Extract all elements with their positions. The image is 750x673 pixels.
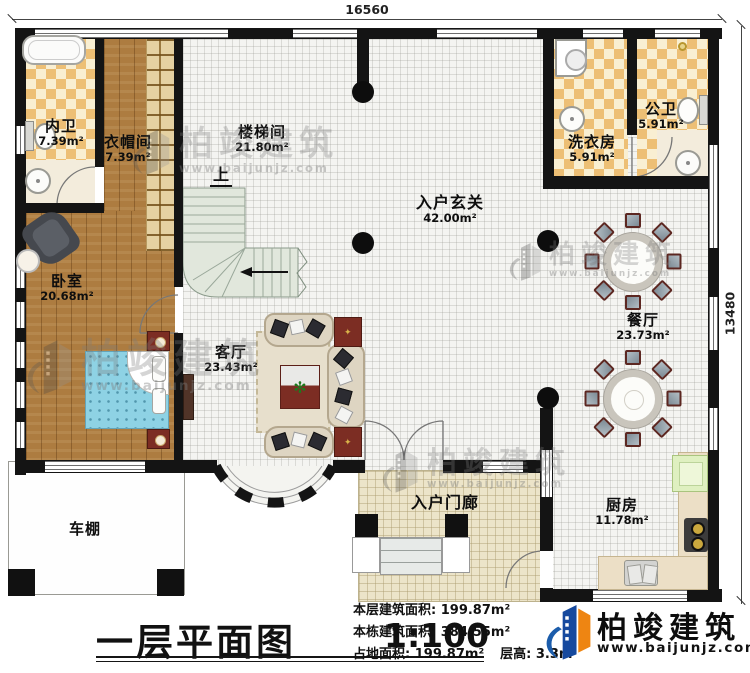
window-left-5 — [16, 382, 25, 408]
room-name: 楼梯间 — [235, 124, 288, 141]
washing-machine — [555, 39, 587, 77]
room-area: 42.00m² — [416, 212, 484, 225]
stair-up-label: 上 — [210, 161, 232, 187]
room-name: 卧室 — [40, 273, 93, 290]
porch-sill-left — [352, 537, 380, 573]
window-porch-top — [483, 461, 523, 472]
porch-steps — [380, 537, 442, 575]
toilet-tank-2 — [699, 95, 708, 125]
wall-bathroom1-right — [95, 35, 104, 167]
wall-laundry-bottom — [543, 176, 708, 189]
room-label-yimaojian: 衣帽间 7.39m² — [104, 134, 152, 164]
wall-laundry-bath-divider — [627, 35, 637, 135]
window-top-2 — [293, 29, 357, 38]
sofa-bottom — [264, 426, 334, 458]
room-name: 餐厅 — [616, 312, 669, 329]
window-right-1 — [709, 145, 718, 248]
dining-table-2 — [604, 370, 662, 428]
window-top-5 — [655, 29, 700, 38]
sink-laundry — [559, 106, 585, 132]
room-name: 衣帽间 — [104, 134, 152, 151]
window-left-6 — [16, 422, 25, 448]
room-name: 洗衣房 — [568, 134, 616, 151]
room-name: 入户门廊 — [411, 494, 479, 512]
toilet-tank-1 — [25, 121, 34, 151]
side-table-2: ✦ — [334, 427, 362, 457]
room-area: 5.91m² — [568, 151, 616, 164]
room-label-ruhuxuanguan: 入户玄关 42.00m² — [416, 194, 484, 225]
wall-stair-stub — [357, 35, 369, 87]
room-name: 内卫 — [38, 118, 83, 135]
room-area: 7.39m² — [104, 151, 152, 164]
pillow-2 — [152, 388, 166, 414]
fridge — [672, 455, 708, 492]
window-left-4 — [16, 342, 25, 368]
wall-bedroom-right — [174, 333, 183, 460]
stat-line-3: 占地面积: 199.87m²层高: 3.3m — [353, 644, 572, 666]
window-kitchen-bottom — [593, 590, 687, 601]
wall-laundry-left — [543, 35, 554, 180]
window-bedroom-bottom — [45, 461, 145, 472]
room-label-keting: 客厅 23.43m² — [204, 344, 257, 374]
pillow-1 — [152, 356, 166, 382]
tv-cabinet — [183, 374, 194, 420]
brand-url: www.baijunjz.com — [597, 640, 750, 656]
room-area: 5.91m² — [638, 118, 683, 131]
outside-area — [183, 466, 358, 600]
table-star-icon: ✦ — [344, 328, 352, 338]
window-left-1 — [16, 126, 25, 154]
stat-line-1: 本层建筑面积: 199.87m² — [353, 600, 572, 622]
room-name: 车棚 — [69, 521, 101, 538]
column-2 — [352, 232, 374, 254]
dining-table-1 — [604, 233, 662, 291]
faucet-bathroom2 — [678, 42, 687, 51]
shed-pillar-right — [157, 569, 184, 596]
window-right-3 — [709, 408, 718, 450]
room-label-neiwei: 内卫 7.39m² — [38, 118, 83, 148]
wall-bay-right — [333, 460, 365, 473]
building-stats: 本层建筑面积: 199.87m² 本栋建筑面积: 384.55m² 占地面积: … — [353, 600, 572, 666]
sink-bathroom1 — [25, 168, 51, 194]
room-label-canting: 餐厅 23.73m² — [616, 312, 669, 342]
room-label-gongwei: 公卫 5.91m² — [638, 101, 683, 131]
stat-line-2: 本栋建筑面积: 384.55m² — [353, 622, 572, 644]
window-left-3 — [16, 302, 25, 328]
dimension-right-label: 13480 — [723, 289, 738, 339]
window-right-2 — [709, 297, 718, 350]
bedroom-side-table — [16, 249, 40, 273]
table-star-icon: ✦ — [344, 438, 352, 448]
wall-closet-right — [174, 35, 183, 287]
sofa-top — [264, 313, 334, 347]
bathtub — [22, 35, 86, 65]
window-top-3 — [437, 29, 537, 38]
column-1 — [352, 81, 374, 103]
stove — [684, 518, 708, 552]
room-label-xiyifang: 洗衣房 5.91m² — [568, 134, 616, 164]
side-table-1: ✦ — [334, 317, 362, 347]
porch-sill-right — [442, 537, 470, 573]
room-label-ruhumenlang: 入户门廊 — [411, 494, 479, 512]
dimension-line-right — [741, 26, 742, 604]
dimension-line-top — [12, 19, 722, 20]
porch-pillar-left — [355, 514, 378, 537]
porch-pillar-right — [445, 514, 468, 537]
room-area: 7.39m² — [38, 135, 83, 148]
room-area: 21.80m² — [235, 141, 288, 154]
plant-icon: ✻ — [281, 378, 319, 397]
door-gap-porch-kitchen — [540, 551, 553, 588]
sink-bathroom2 — [675, 150, 701, 176]
room-area: 20.68m² — [40, 290, 93, 303]
column-3 — [537, 230, 559, 252]
room-area: 11.78m² — [595, 514, 648, 527]
room-label-chufang: 厨房 11.78m² — [595, 497, 648, 527]
room-name: 入户玄关 — [416, 194, 484, 212]
room-label-loutijian: 楼梯间 21.80m² — [235, 124, 288, 154]
nightstand-1 — [147, 331, 170, 351]
floor-plan-page: ✻ ✦ ✦ — [0, 0, 750, 673]
sofa-right — [327, 344, 365, 428]
room-label-woshi: 卧室 20.68m² — [40, 273, 93, 303]
wall-bathroom1-bottom — [15, 203, 104, 213]
column-4 — [537, 387, 559, 409]
window-kitchen-left — [541, 450, 552, 497]
brand-logo-icon — [541, 598, 593, 664]
nightstand-2 — [147, 429, 170, 449]
dimension-top-label: 16560 — [341, 2, 393, 17]
window-top-4 — [583, 29, 623, 38]
room-area: 23.73m² — [616, 329, 669, 342]
shed-pillar-left — [8, 569, 35, 596]
kitchen-sink — [624, 560, 658, 586]
coffee-table: ✻ — [280, 365, 320, 409]
room-name: 厨房 — [595, 497, 648, 514]
room-name: 客厅 — [204, 344, 257, 361]
room-area: 23.43m² — [204, 361, 257, 374]
room-name: 公卫 — [638, 101, 683, 118]
room-label-chepeng: 车棚 — [69, 521, 101, 538]
